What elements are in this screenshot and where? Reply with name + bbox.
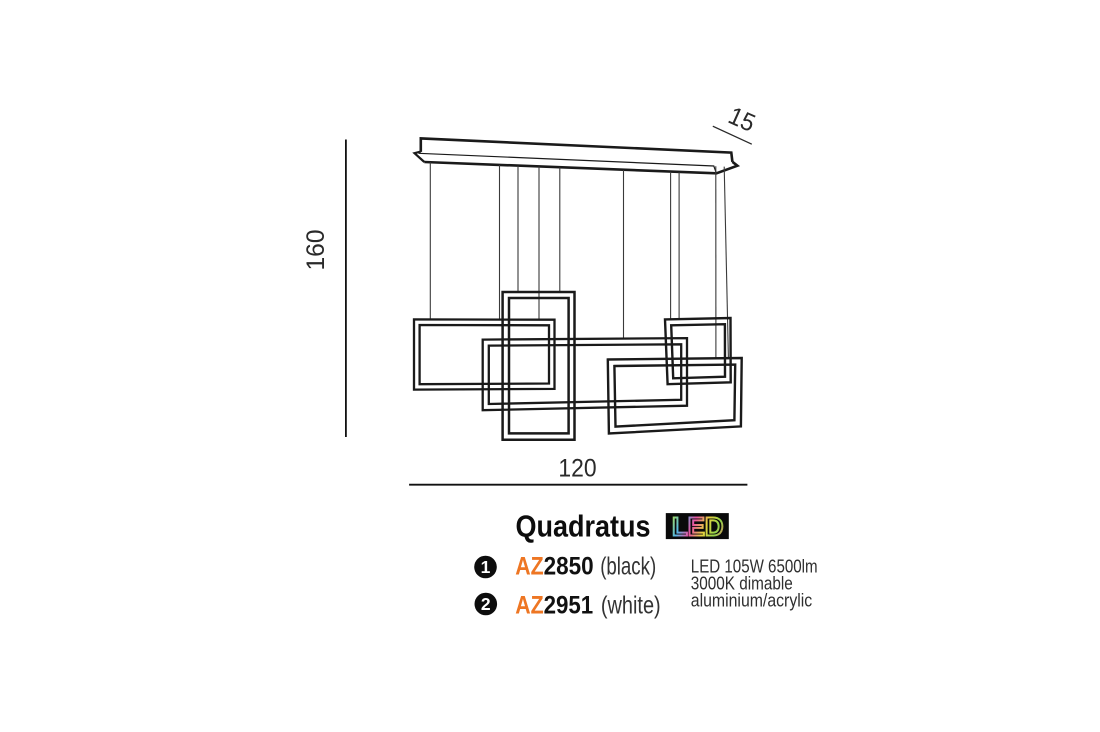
svg-text:120: 120	[558, 455, 596, 483]
svg-text:15: 15	[724, 102, 759, 138]
svg-text:2850: 2850	[544, 553, 594, 581]
svg-text:(white): (white)	[601, 591, 661, 619]
svg-text:Quadratus: Quadratus	[516, 509, 651, 543]
svg-text:(black): (black)	[600, 553, 656, 581]
svg-text:AZ: AZ	[515, 553, 543, 581]
svg-text:AZ: AZ	[515, 591, 543, 619]
svg-text:aluminium/acrylic: aluminium/acrylic	[691, 590, 812, 611]
svg-text:160: 160	[302, 230, 330, 271]
svg-text:LED: LED	[672, 512, 724, 542]
svg-text:2: 2	[481, 594, 491, 614]
svg-text:1: 1	[481, 557, 491, 577]
svg-text:2951: 2951	[544, 591, 594, 619]
